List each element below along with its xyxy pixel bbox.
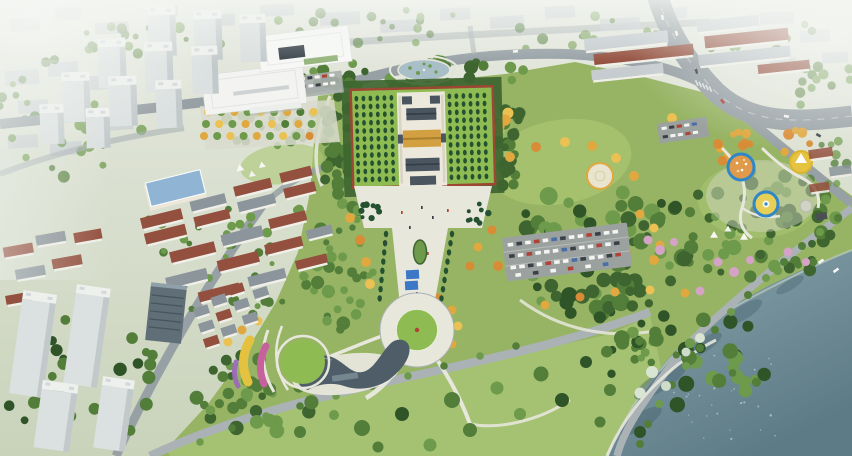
plaza-sculpture bbox=[415, 328, 419, 332]
temple-compound bbox=[346, 81, 501, 202]
round-feature-ring bbox=[587, 163, 613, 189]
main-hall-wing-west bbox=[398, 135, 403, 144]
aerial-masterplan-rendering bbox=[0, 0, 852, 456]
gate-hall bbox=[410, 176, 436, 186]
round-garden-feature bbox=[587, 163, 613, 189]
scene-canvas bbox=[0, 0, 852, 456]
haze-left-edge bbox=[0, 60, 110, 280]
north-pavilion-west bbox=[402, 96, 412, 104]
play-pad-small bbox=[800, 200, 812, 212]
north-pavilion-east bbox=[430, 96, 440, 104]
glass-building-body bbox=[145, 286, 186, 343]
axis-hedge-feature bbox=[414, 240, 427, 264]
glass-office-building bbox=[145, 282, 187, 343]
lawn-mound bbox=[281, 340, 325, 384]
main-hall-wing-east bbox=[441, 133, 446, 142]
play-circle-orange bbox=[728, 154, 754, 180]
blue-sign-panel-2 bbox=[405, 281, 418, 291]
blue-sign-panel-1 bbox=[406, 270, 419, 280]
